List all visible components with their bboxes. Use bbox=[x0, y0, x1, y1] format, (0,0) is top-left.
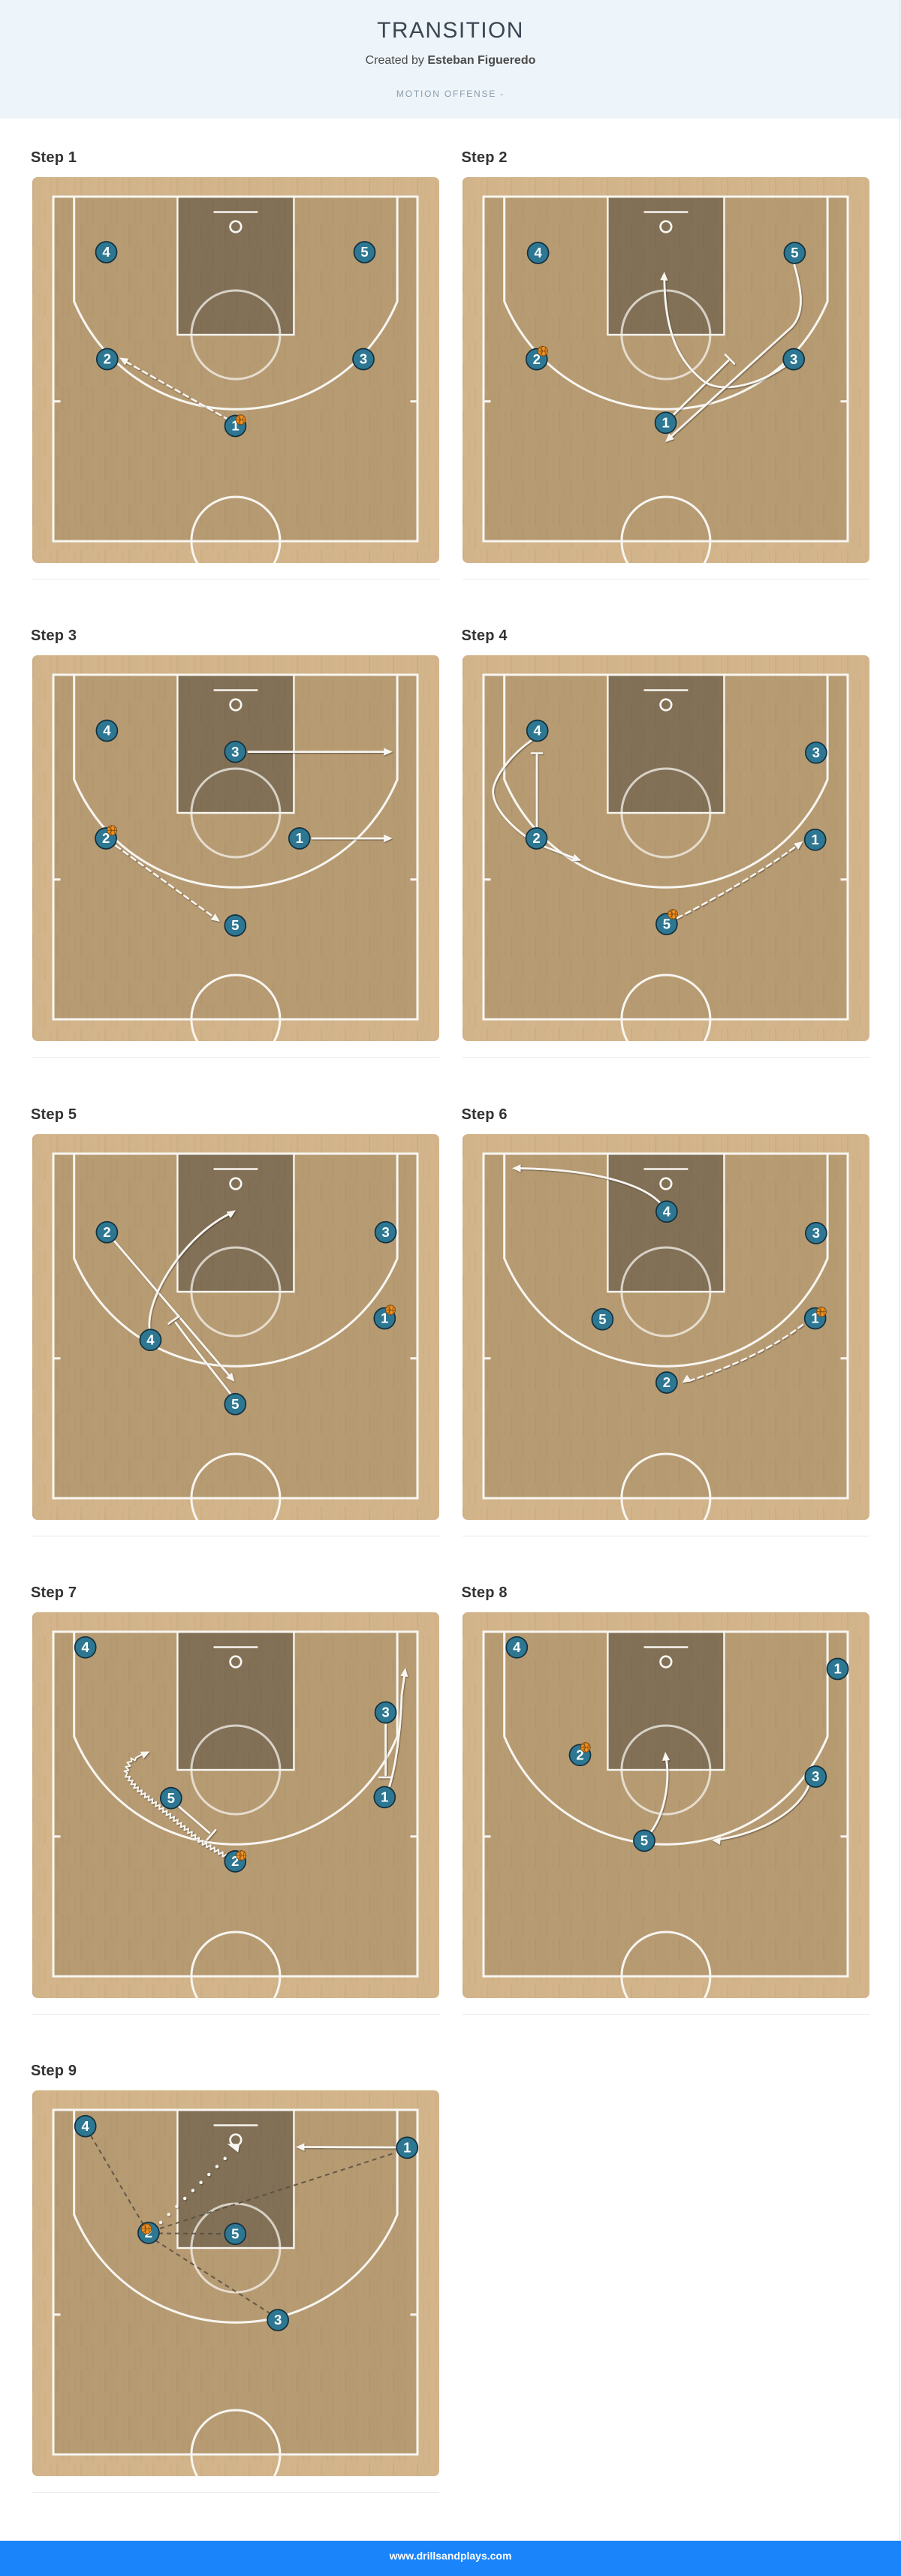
svg-text:3: 3 bbox=[231, 744, 239, 760]
svg-text:2: 2 bbox=[663, 1374, 670, 1390]
svg-text:4: 4 bbox=[534, 245, 542, 260]
svg-text:3: 3 bbox=[381, 1224, 389, 1240]
svg-text:3: 3 bbox=[812, 1768, 819, 1784]
svg-text:5: 5 bbox=[231, 917, 239, 933]
svg-text:3: 3 bbox=[812, 1225, 820, 1241]
svg-text:1: 1 bbox=[833, 1661, 841, 1677]
svg-text:4: 4 bbox=[81, 2118, 89, 2134]
svg-text:5: 5 bbox=[791, 245, 798, 260]
svg-text:3: 3 bbox=[812, 745, 820, 760]
svg-text:4: 4 bbox=[102, 244, 110, 260]
svg-text:2: 2 bbox=[103, 351, 110, 367]
svg-text:2: 2 bbox=[103, 1224, 110, 1240]
svg-text:2: 2 bbox=[532, 830, 540, 846]
svg-text:1: 1 bbox=[661, 415, 669, 431]
svg-text:4: 4 bbox=[81, 1639, 89, 1655]
svg-text:4: 4 bbox=[663, 1203, 671, 1219]
svg-text:1: 1 bbox=[295, 830, 303, 846]
svg-text:4: 4 bbox=[513, 1639, 521, 1655]
svg-text:5: 5 bbox=[663, 916, 670, 931]
svg-text:4: 4 bbox=[103, 723, 111, 739]
svg-text:5: 5 bbox=[167, 1790, 174, 1806]
svg-text:1: 1 bbox=[403, 2140, 411, 2156]
svg-text:4: 4 bbox=[534, 723, 542, 739]
svg-text:1: 1 bbox=[812, 832, 819, 847]
svg-text:3: 3 bbox=[359, 351, 366, 367]
svg-text:5: 5 bbox=[640, 1833, 648, 1849]
svg-text:3: 3 bbox=[381, 1705, 389, 1720]
svg-text:4: 4 bbox=[146, 1332, 155, 1347]
svg-text:5: 5 bbox=[231, 2225, 239, 2241]
svg-text:1: 1 bbox=[381, 1789, 388, 1805]
svg-text:3: 3 bbox=[790, 351, 797, 367]
svg-text:5: 5 bbox=[231, 1396, 239, 1412]
svg-text:3: 3 bbox=[273, 2312, 281, 2328]
svg-text:5: 5 bbox=[360, 244, 368, 260]
svg-text:5: 5 bbox=[598, 1311, 606, 1327]
